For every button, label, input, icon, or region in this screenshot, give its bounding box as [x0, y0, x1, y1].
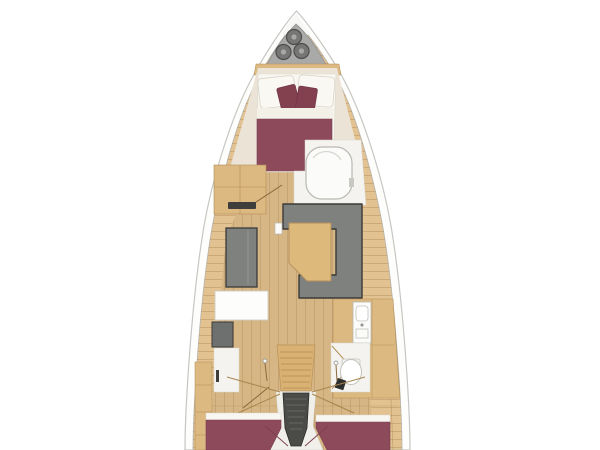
port-settee [226, 228, 257, 287]
port-aft-cabin [206, 413, 281, 450]
nav-seat [212, 322, 233, 347]
forward-shower-unit [306, 147, 352, 199]
forward-shower-handle [349, 178, 354, 187]
starboard-aft-cabin [316, 415, 390, 450]
yacht-floorplan-image [0, 0, 600, 450]
galley-faucet [360, 323, 363, 326]
port-cabinet-handle [228, 202, 256, 209]
hatch-knob-right [334, 361, 338, 365]
dinette-latch [275, 223, 282, 234]
bow-hatch-1-dot [291, 34, 296, 39]
bow-hatch-3-dot [299, 48, 304, 53]
port-locker-handle [216, 370, 219, 382]
port-aft-berth [206, 420, 281, 450]
bow-hatch-2-dot [281, 49, 286, 54]
floorplan-svg [0, 0, 600, 450]
galley-sink [356, 306, 368, 321]
nav-desk [215, 291, 268, 320]
hatch-knob-left [263, 359, 267, 363]
